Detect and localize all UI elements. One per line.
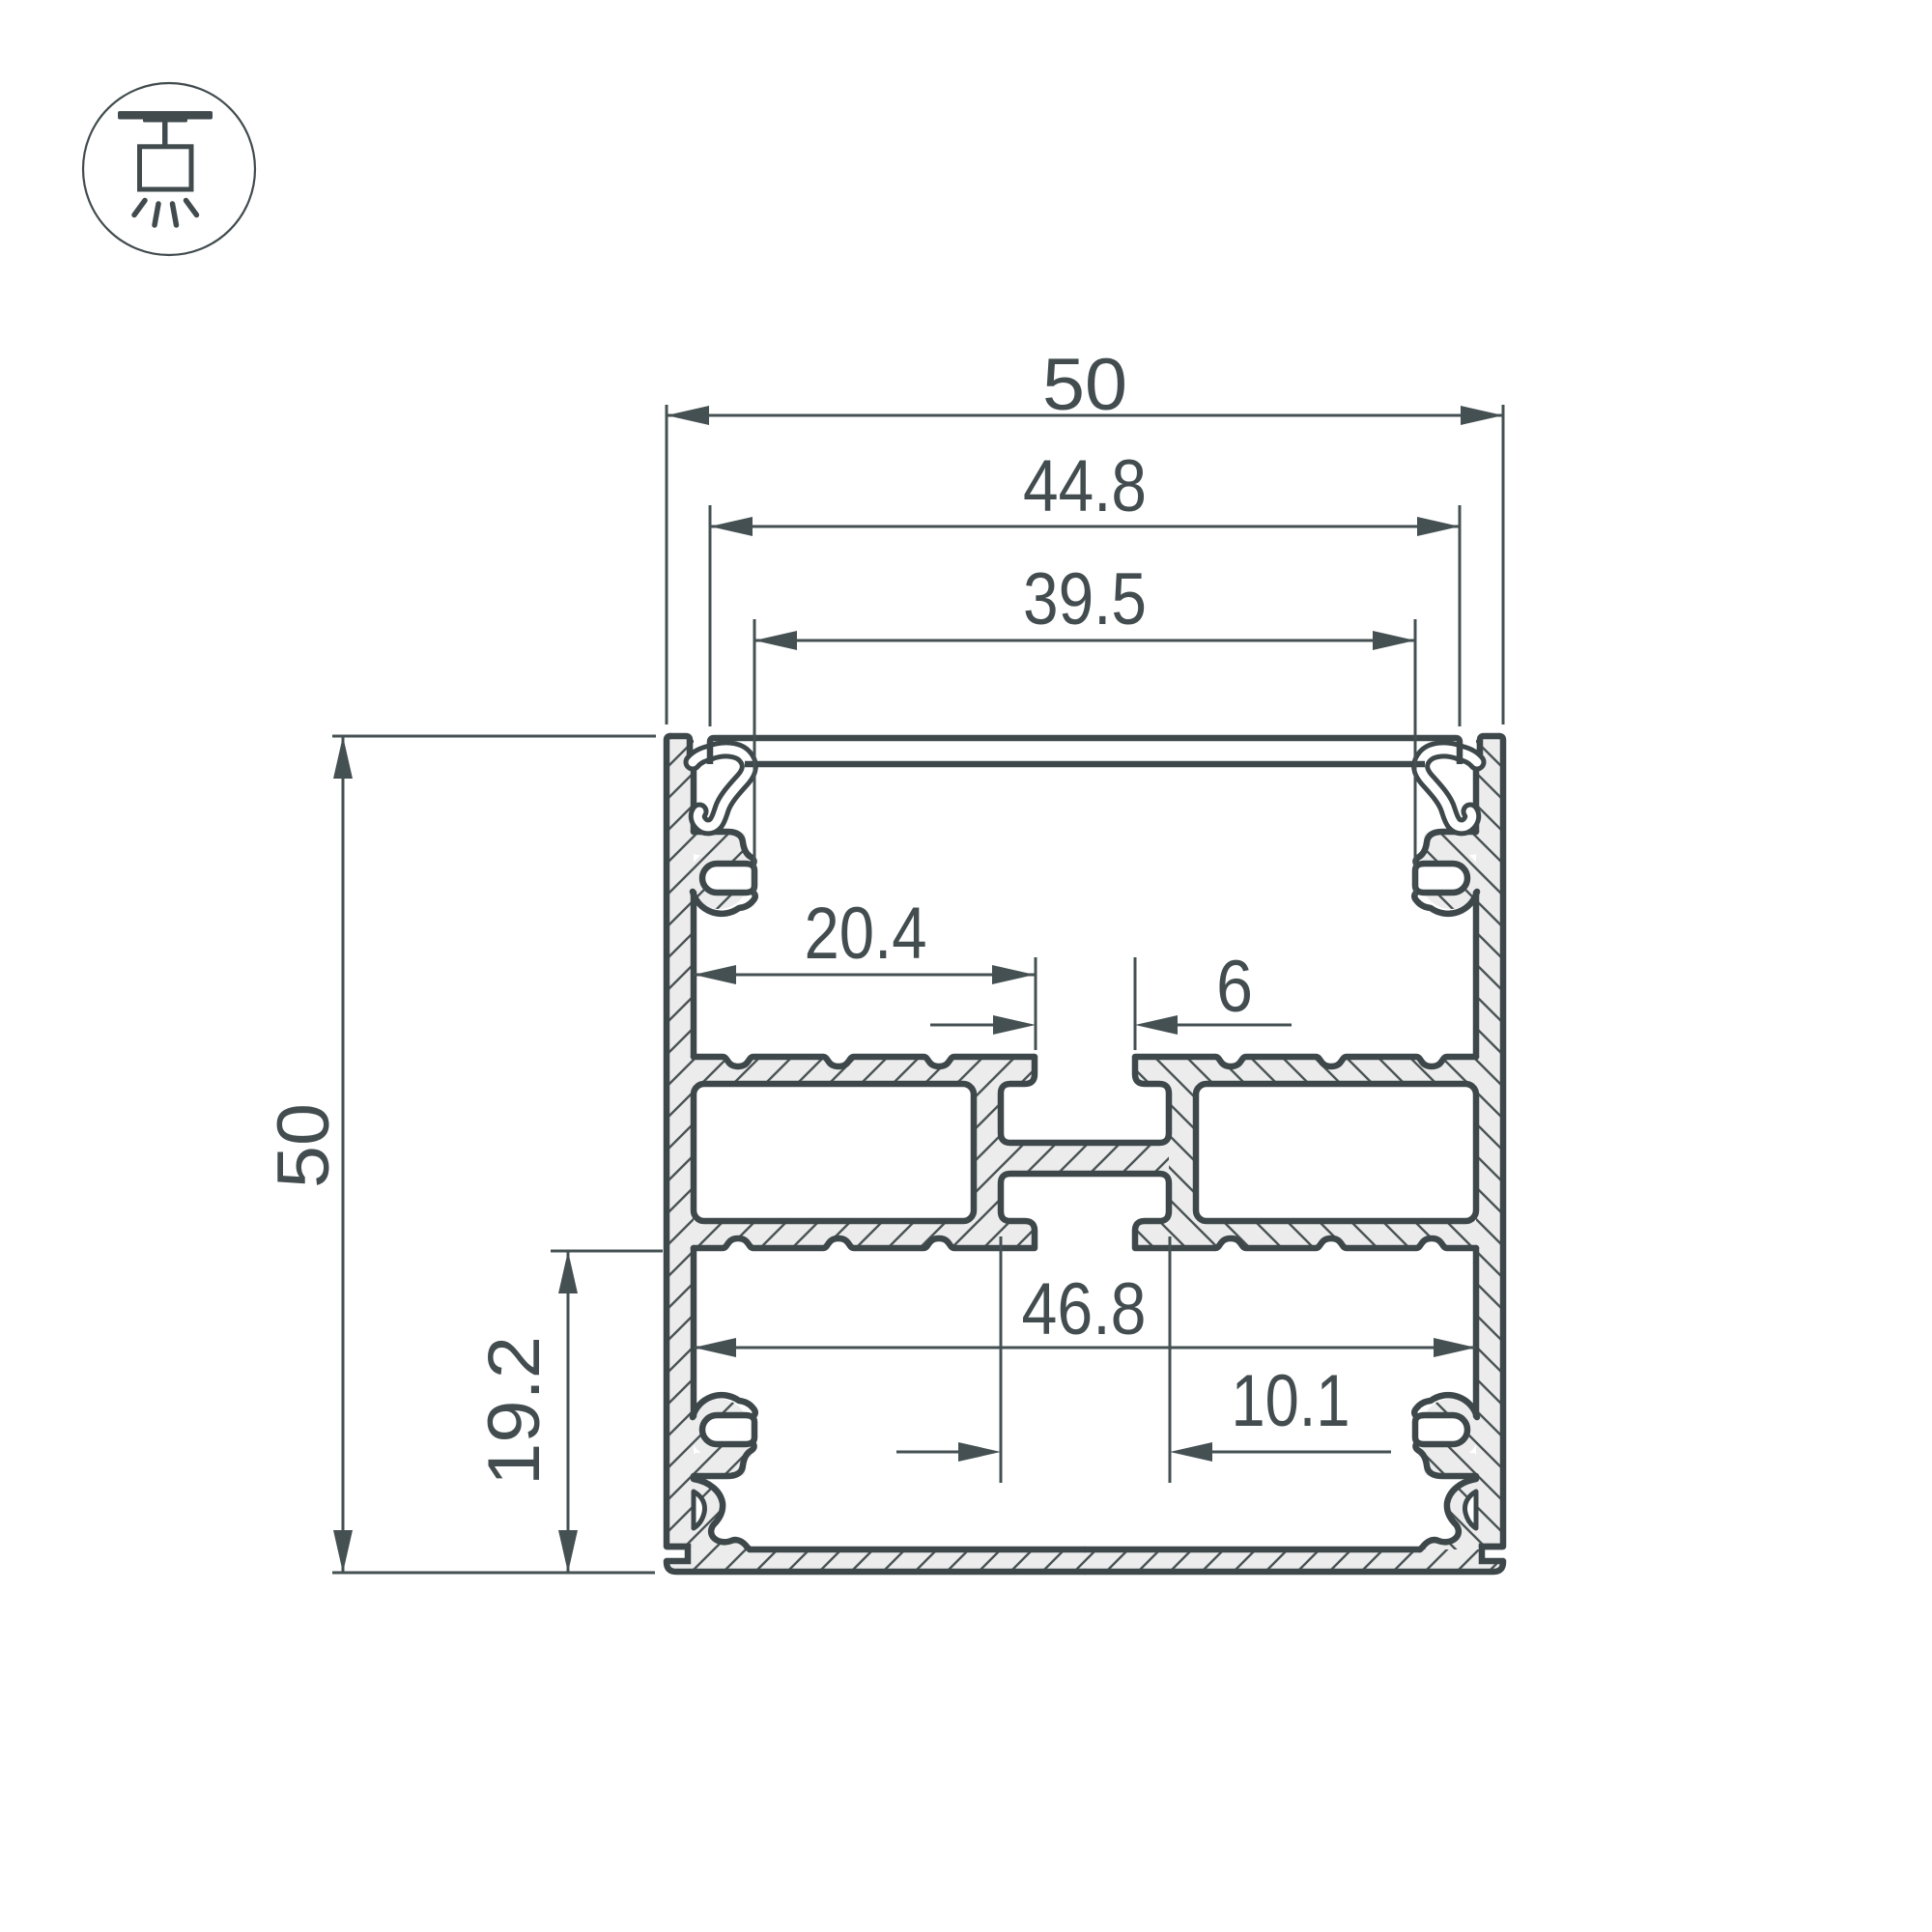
svg-text:19.2: 19.2 (473, 1336, 555, 1486)
svg-text:6: 6 (1216, 946, 1253, 1028)
svg-text:44.8: 44.8 (1023, 445, 1147, 527)
svg-text:50: 50 (263, 1103, 345, 1188)
svg-text:20.4: 20.4 (805, 893, 927, 975)
svg-text:10.1: 10.1 (1232, 1360, 1350, 1442)
svg-text:50: 50 (1042, 344, 1127, 426)
svg-text:46.8: 46.8 (1022, 1268, 1147, 1350)
svg-text:39.5: 39.5 (1023, 558, 1147, 640)
